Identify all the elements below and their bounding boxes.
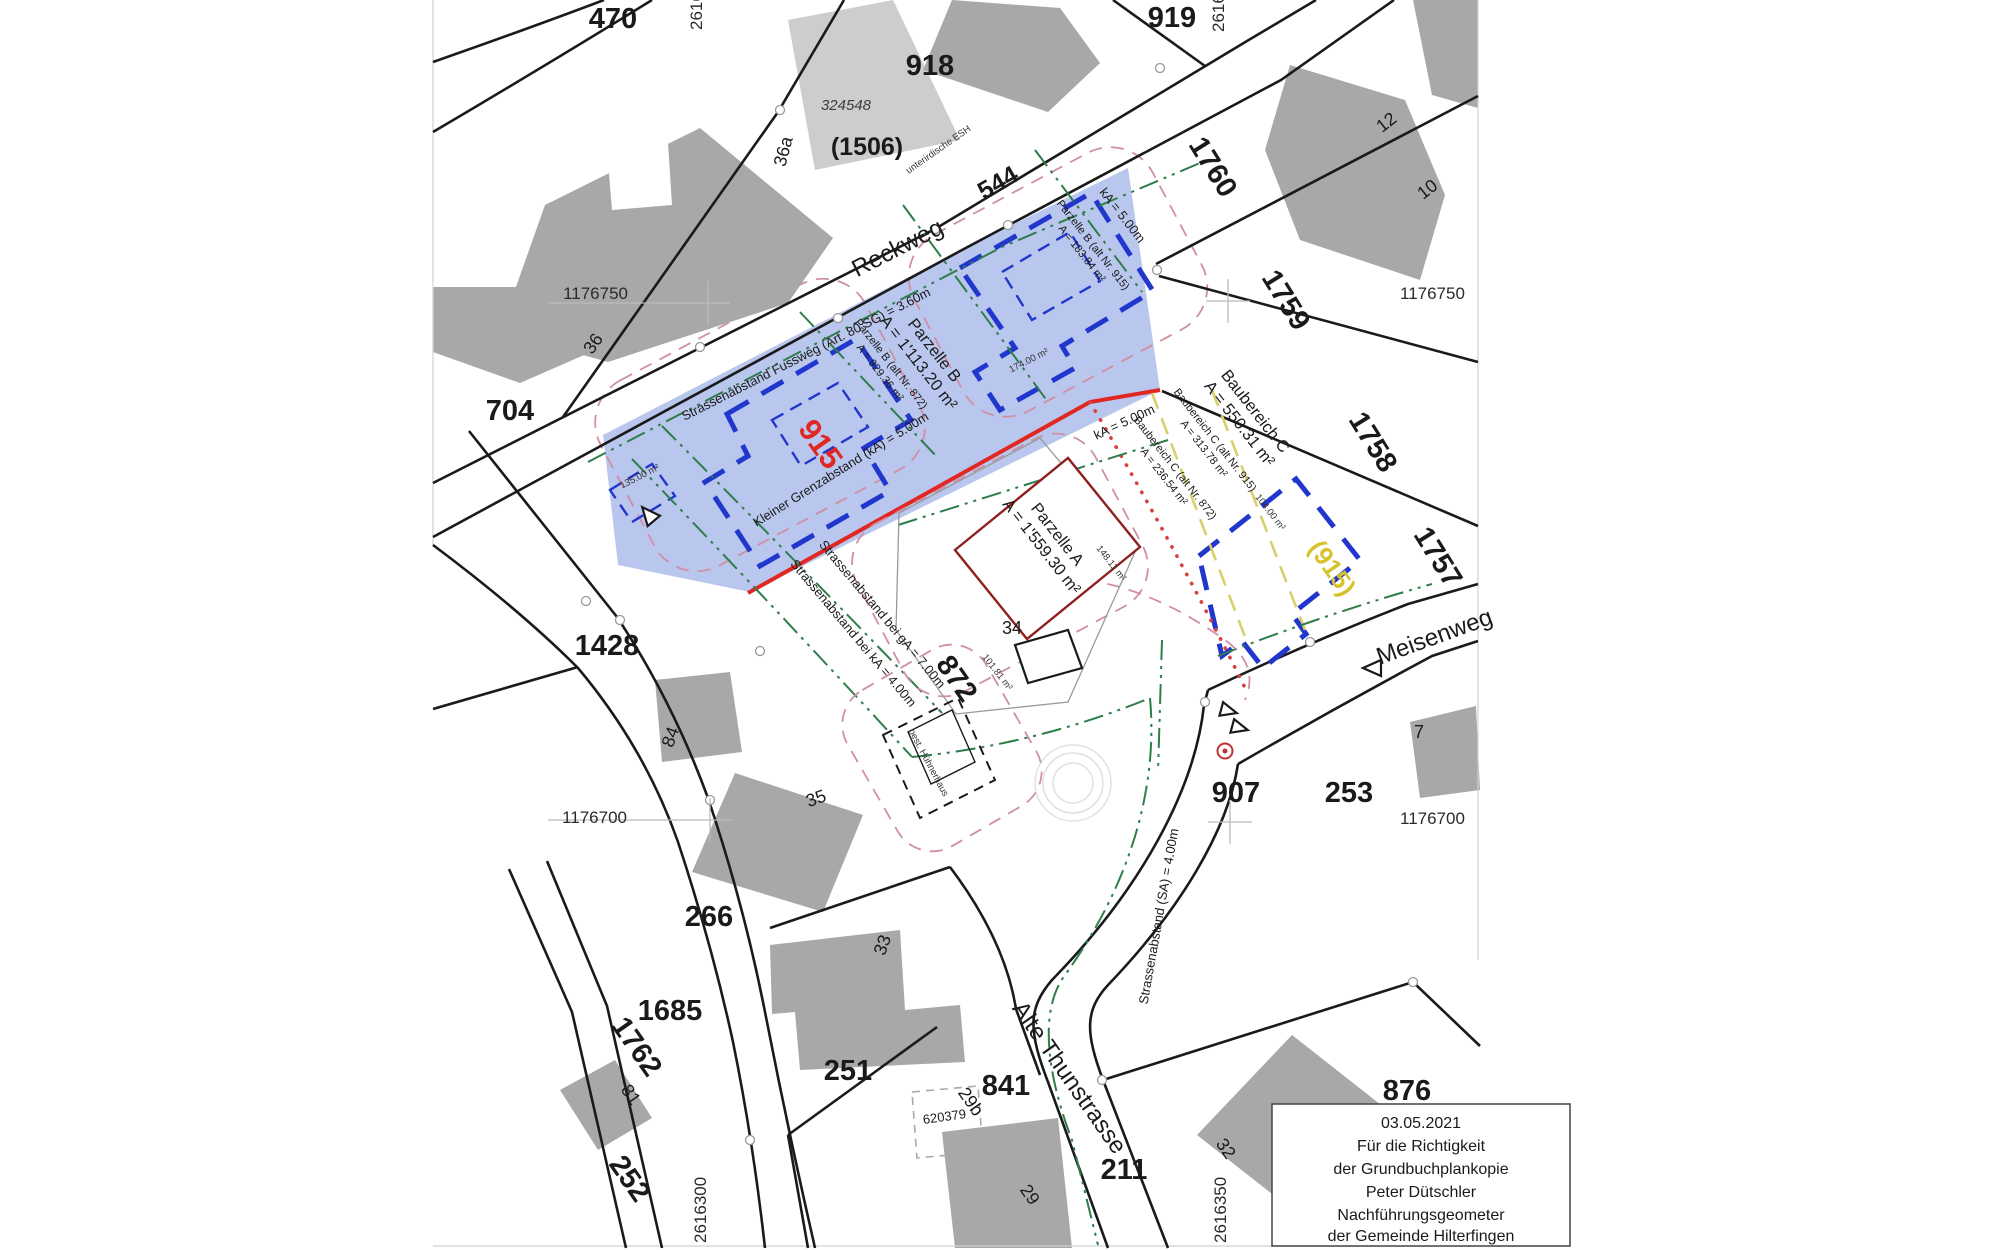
survey-point-red-center bbox=[1223, 749, 1228, 754]
certification-line-2: der Grundbuchplankopie bbox=[1333, 1161, 1508, 1178]
parcel-1506: (1506) bbox=[831, 133, 903, 161]
parcel-841: 841 bbox=[982, 1070, 1030, 1102]
building-704-court bbox=[607, 143, 672, 210]
cadastral-map: 1176750 1176750 1176700 1176700 2616300 … bbox=[0, 0, 2000, 1250]
grid-label-n700-right: 1176700 bbox=[1400, 809, 1465, 828]
certification-line-3: Peter Dütschler bbox=[1366, 1184, 1477, 1201]
parcel-251: 251 bbox=[824, 1055, 872, 1087]
building-id-324548: 324548 bbox=[821, 97, 872, 114]
grid-label-n750-right: 1176750 bbox=[1400, 284, 1465, 303]
parcel-211: 211 bbox=[1101, 1154, 1148, 1186]
parcel-253: 253 bbox=[1325, 777, 1373, 809]
grid-label-e300-bottom: 2616300 bbox=[691, 1177, 710, 1243]
certification-line-4: Nachführungsgeometer bbox=[1337, 1207, 1505, 1224]
certification-date: 03.05.2021 bbox=[1381, 1115, 1461, 1132]
grid-label-n700-left: 1176700 bbox=[562, 808, 627, 827]
parcel-876: 876 bbox=[1383, 1075, 1431, 1107]
grid-label-e350-top: 2616350 bbox=[1209, 0, 1228, 32]
parcel-704: 704 bbox=[486, 395, 534, 427]
parcel-1428: 1428 bbox=[575, 630, 640, 662]
parcel-918: 918 bbox=[906, 50, 954, 82]
cadastral-plan-page: 1176750 1176750 1176700 1176700 2616300 … bbox=[0, 0, 2000, 1250]
parcel-907: 907 bbox=[1212, 777, 1260, 809]
house-34: 34 bbox=[1002, 618, 1022, 638]
grid-label-e350-bottom: 2616350 bbox=[1211, 1177, 1230, 1243]
parcel-266: 266 bbox=[685, 901, 733, 933]
grid-label-e300-top: 2616300 bbox=[687, 0, 706, 30]
certification-line-1: Für die Richtigkeit bbox=[1357, 1138, 1486, 1155]
house-7: 7 bbox=[1414, 722, 1424, 742]
building-84 bbox=[655, 672, 742, 762]
certification-line-5: der Gemeinde Hilterfingen bbox=[1328, 1228, 1515, 1245]
parcel-470: 470 bbox=[589, 3, 637, 35]
building-7 bbox=[1410, 706, 1480, 798]
parcel-1685: 1685 bbox=[638, 995, 703, 1027]
certification-box: 03.05.2021 Für die Richtigkeit der Grund… bbox=[1272, 1104, 1570, 1246]
grid-label-n750-left: 1176750 bbox=[563, 284, 628, 303]
building-29 bbox=[942, 1118, 1072, 1248]
parcel-919: 919 bbox=[1148, 2, 1196, 34]
